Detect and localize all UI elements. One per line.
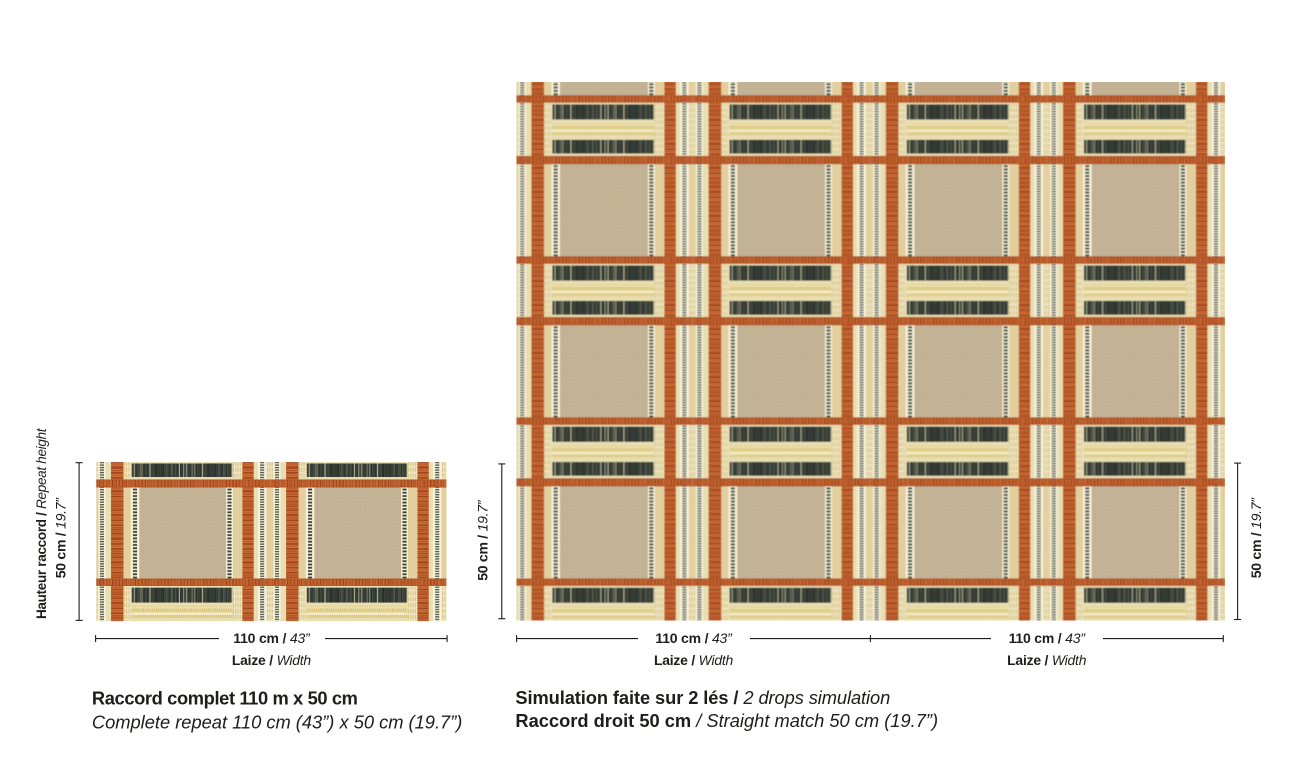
svg-text:Laize / Width: Laize / Width [654, 652, 734, 668]
svg-text:Raccord droit 50 cm / Straight: Raccord droit 50 cm / Straight match 50 … [515, 710, 938, 731]
svg-text:50 cm / 19.7”: 50 cm / 19.7” [475, 499, 491, 581]
svg-text:50 cm / 19.7”: 50 cm / 19.7” [53, 497, 69, 579]
svg-text:50 cm / 19.7”: 50 cm / 19.7” [1248, 497, 1264, 579]
svg-text:Raccord complet 110 m x 50 cm: Raccord complet 110 m x 50 cm [92, 688, 358, 709]
svg-text:Hauteur raccord / Repeat heigh: Hauteur raccord / Repeat height [34, 427, 49, 619]
svg-text:110 cm / 43”: 110 cm / 43” [655, 630, 733, 646]
svg-text:Simulation faite sur 2 lés / 2: Simulation faite sur 2 lés / 2 drops sim… [515, 687, 890, 708]
svg-text:Laize / Width: Laize / Width [232, 652, 312, 668]
svg-text:110 cm / 43”: 110 cm / 43” [233, 630, 311, 646]
svg-text:110 cm / 43”: 110 cm / 43” [1009, 630, 1087, 646]
svg-text:Laize / Width: Laize / Width [1007, 652, 1087, 668]
svg-text:Complete repeat 110 cm (43”) x: Complete repeat 110 cm (43”) x 50 cm (19… [92, 711, 463, 732]
